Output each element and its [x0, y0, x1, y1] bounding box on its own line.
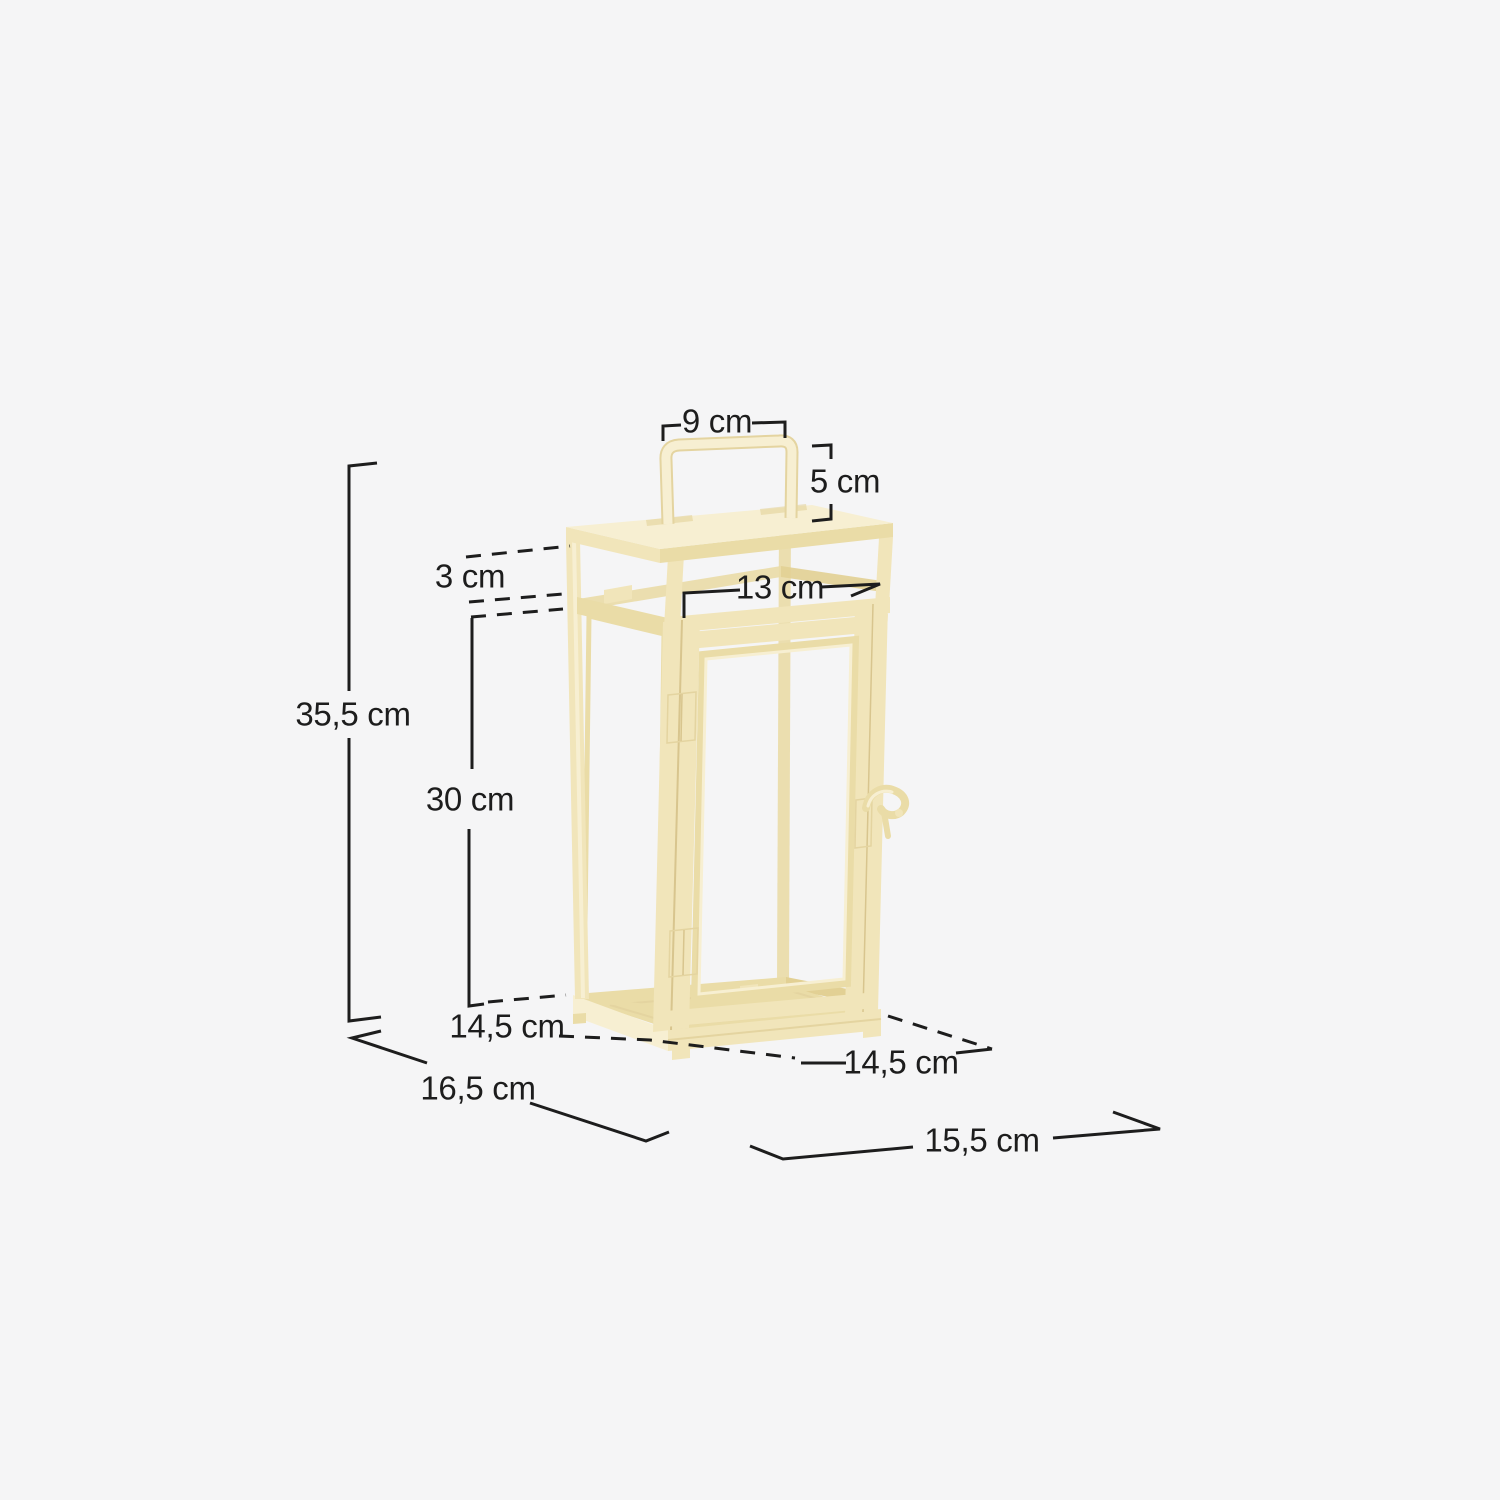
lantern-back-frame — [576, 515, 889, 1006]
dim-label-handle-height: 5 cm — [810, 465, 880, 498]
dim-label-base-depth: 14,5 cm — [449, 1010, 564, 1043]
dimension-line-total-height — [349, 463, 381, 1021]
product-dimensions-canvas: 9 cm 5 cm 3 cm 13 cm 35,5 cm 30 cm 14,5 … — [0, 0, 1500, 1500]
dim-label-lid-gap-height: 3 cm — [435, 560, 505, 593]
dim-label-total-height: 35,5 cm — [295, 698, 410, 731]
dim-label-body-height: 30 cm — [426, 783, 514, 816]
lantern-illustration — [566, 441, 905, 1060]
left-pane-frame — [584, 616, 664, 1008]
dim-label-handle-width: 9 cm — [682, 405, 752, 438]
dim-label-overall-width: 15,5 cm — [924, 1124, 1039, 1157]
door-pane-frame — [695, 640, 855, 999]
lantern-figure — [0, 0, 1500, 1500]
dimension-extension-body-height — [488, 995, 566, 1002]
dim-label-overall-depth: 16,5 cm — [420, 1072, 535, 1105]
dim-label-top-inner-width: 13 cm — [736, 571, 824, 604]
dim-label-base-width: 14,5 cm — [843, 1046, 958, 1079]
lantern-door — [653, 597, 890, 1032]
lantern-lid — [566, 504, 893, 563]
